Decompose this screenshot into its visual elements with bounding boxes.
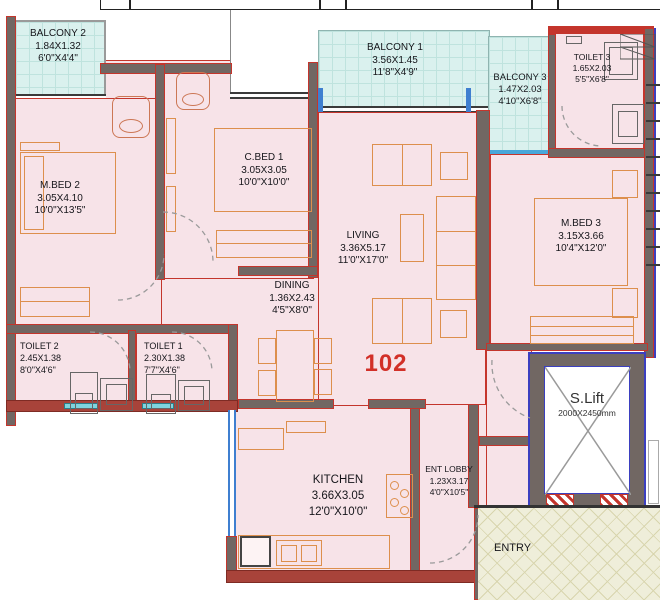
- room-metric: 3.05X3.05: [216, 165, 312, 178]
- sink-fixture: [276, 540, 322, 566]
- kitchen-counter: [286, 421, 326, 433]
- room-metric: 3.15X3.66: [533, 231, 629, 244]
- lift-label: S.Lift 2000X2450mm: [544, 390, 630, 419]
- shower-fixture: [100, 378, 133, 411]
- wc-bowl: [75, 393, 93, 409]
- wardrobe-line: [531, 335, 633, 336]
- dresser-furniture: [216, 230, 312, 258]
- shower-tray: [618, 111, 638, 137]
- sofa-line: [437, 231, 475, 232]
- window-seat: [166, 118, 176, 174]
- dining-table-furniture: [276, 330, 314, 402]
- wall-mbed3-bottom: [486, 343, 648, 351]
- wall-toilet3-bottom: [548, 148, 654, 158]
- sofa-line: [402, 299, 403, 343]
- room-imperial: 8'0"X4'6": [20, 364, 100, 376]
- room-metric: 1.84X1.32: [14, 41, 102, 54]
- lift-metric: 2000X2450mm: [544, 408, 630, 419]
- adjacent-lift-outline: [648, 440, 659, 504]
- balcony1-window-jamb: [466, 88, 471, 114]
- mbed2-label: M.BED 2 3.05X4.10 10'0"X13'5": [15, 180, 105, 218]
- right-edge-hatch-marks: [646, 84, 660, 280]
- strip-divider: [557, 0, 559, 9]
- balcony2-label: BALCONY 2 1.84X1.32 6'0"X4'4": [14, 28, 102, 66]
- dining-label: DINING 1.36X2.43 4'5"X8'0": [250, 280, 334, 318]
- room-imperial: 12'0"X10'0": [268, 504, 408, 520]
- living-label: LIVING 3.36X5.17 11'0"X17'0": [308, 230, 418, 268]
- lift-name: S.Lift: [544, 390, 630, 408]
- chair-seat: [182, 93, 204, 106]
- room-metric: 1.65X2.03: [555, 63, 629, 74]
- room-imperial: 11'0"X17'0": [308, 255, 418, 268]
- lift-passage: [486, 348, 532, 510]
- side-table: [612, 288, 638, 318]
- entry-label: ENTRY: [494, 541, 564, 555]
- wardrobe-line: [21, 301, 89, 302]
- room-name: BALCONY 2: [14, 28, 102, 41]
- wall-passage-stub: [479, 436, 531, 446]
- toilet2-label: TOILET 2 2.45X1.38 8'0"X4'6": [20, 340, 100, 376]
- chair-seat: [119, 119, 143, 133]
- cbed1-window: [230, 92, 318, 99]
- room-imperial: 7'7"X4'6": [144, 364, 222, 376]
- lift-cross-icon: [545, 367, 631, 495]
- sink-bowl: [281, 545, 297, 562]
- wall-toilet1-right: [228, 324, 238, 412]
- balcony1-window-jamb: [318, 88, 323, 114]
- sink-bowl: [301, 545, 317, 562]
- dining-chair: [314, 369, 332, 395]
- room-imperial: 11'8"X4'9": [321, 67, 469, 80]
- strip-divider: [129, 0, 131, 9]
- kitchen-window-left: [228, 410, 236, 538]
- wall-below-cbed1: [238, 266, 318, 276]
- wardrobe-line: [531, 326, 633, 327]
- wall-toilet3-top: [548, 26, 654, 34]
- room-metric: 3.36X5.17: [308, 243, 418, 256]
- shower-tray: [106, 384, 127, 405]
- lift-cabin: [544, 366, 630, 494]
- room-name: M.BED 2: [15, 180, 105, 193]
- room-name: M.BED 3: [533, 218, 629, 231]
- sofa-line: [437, 265, 475, 266]
- room-name: BALCONY 1: [321, 42, 469, 55]
- dresser-chair: [176, 72, 210, 110]
- sofa-line: [402, 145, 403, 185]
- room-imperial: 10'4"X12'0": [533, 243, 629, 256]
- floor-plan: BALCONY 2 1.84X1.32 6'0"X4'4" BALCONY 1 …: [0, 0, 660, 600]
- sofa-furniture: [372, 144, 432, 186]
- shower-tray: [184, 386, 204, 405]
- dresser-line: [217, 243, 311, 244]
- dresser-chair: [112, 96, 150, 138]
- side-table: [612, 170, 638, 198]
- room-imperial: 4'5"X8'0": [250, 305, 334, 318]
- toilet-wc-fixture: [146, 374, 176, 414]
- room-metric: 2.45X1.38: [20, 352, 100, 364]
- room-metric: 1.23X3.17: [418, 476, 480, 488]
- room-name: TOILET 2: [20, 340, 100, 352]
- kitchen-counter: [238, 428, 284, 450]
- sofa-furniture: [372, 298, 432, 344]
- wardrobe-furniture: [530, 316, 634, 344]
- room-imperial: 10'0"X10'0": [216, 177, 312, 190]
- balcony1-label: BALCONY 1 3.56X1.45 11'8"X4'9": [321, 42, 469, 80]
- kitchen-label: KITCHEN 3.66X3.05 12'0"X10'0": [268, 472, 408, 520]
- room-metric: 3.66X3.05: [268, 488, 408, 504]
- toilet1-label: TOILET 1 2.30X1.38 7'7"X4'6": [144, 340, 222, 376]
- sofa-furniture: [436, 196, 476, 300]
- room-metric: 2.30X1.38: [144, 352, 222, 364]
- room-name: C.BED 1: [216, 152, 312, 165]
- window-seat: [166, 186, 176, 232]
- exterior-void: [230, 10, 318, 94]
- room-name: ENTRY: [494, 541, 564, 555]
- wc-bowl: [151, 394, 171, 409]
- strip-divider: [345, 0, 347, 9]
- top-neighbour-strip: [100, 0, 660, 10]
- room-metric: 3.56X1.45: [321, 55, 469, 68]
- unit-number: 102: [344, 350, 428, 378]
- room-metric: 3.05X4.10: [15, 193, 105, 206]
- side-table: [440, 310, 467, 338]
- side-table: [440, 152, 468, 180]
- shelf-fixture: [566, 36, 582, 44]
- room-name: DINING: [250, 280, 334, 293]
- room-name: TOILET 1: [144, 340, 222, 352]
- dining-chair: [258, 370, 276, 396]
- cbed1-label: C.BED 1 3.05X3.05 10'0"X10'0": [216, 152, 312, 190]
- dining-chair: [258, 338, 276, 364]
- room-name: ENT LOBBY: [418, 464, 480, 476]
- wall-mbed2-cbed1: [155, 64, 165, 280]
- wall-kitchen-bottom: [226, 570, 490, 583]
- bedside-shelf: [20, 142, 60, 151]
- kitchen-store-unit: [240, 536, 271, 567]
- wardrobe-furniture: [20, 287, 90, 317]
- strip-divider: [319, 0, 321, 9]
- balcony3-label: BALCONY 3 1.47X2.03 4'10"X6'8": [486, 72, 554, 108]
- wall-toilets-top: [6, 324, 236, 334]
- room-imperial: 4'10"X6'8": [486, 96, 554, 108]
- room-imperial: 6'0"X4'4": [14, 53, 102, 66]
- room-metric: 1.47X2.03: [486, 84, 554, 96]
- room-imperial: 5'5"X6'8": [555, 74, 629, 85]
- outer-wall-left: [6, 16, 16, 426]
- room-name: KITCHEN: [268, 472, 408, 488]
- shower-fixture: [612, 104, 644, 144]
- room-imperial: 4'0"X10'5": [418, 487, 480, 499]
- strip-divider: [531, 0, 533, 9]
- room-imperial: 10'0"X13'5": [15, 205, 105, 218]
- room-metric: 1.36X2.43: [250, 293, 334, 306]
- room-name: BALCONY 3: [486, 72, 554, 84]
- room-name: TOILET 3: [555, 52, 629, 63]
- ent-lobby-label: ENT LOBBY 1.23X3.17 4'0"X10'5": [418, 464, 480, 499]
- shower-fixture: [178, 380, 210, 411]
- toilet-wc-fixture: [70, 372, 98, 414]
- mbed3-label: M.BED 3 3.15X3.66 10'4"X12'0": [533, 218, 629, 256]
- dining-chair: [314, 338, 332, 364]
- wall-top-bedrooms: [100, 63, 232, 74]
- toilet3-label: TOILET 3 1.65X2.03 5'5"X6'8": [555, 52, 629, 85]
- room-name: LIVING: [308, 230, 418, 243]
- wall-living-mbed3: [476, 110, 490, 350]
